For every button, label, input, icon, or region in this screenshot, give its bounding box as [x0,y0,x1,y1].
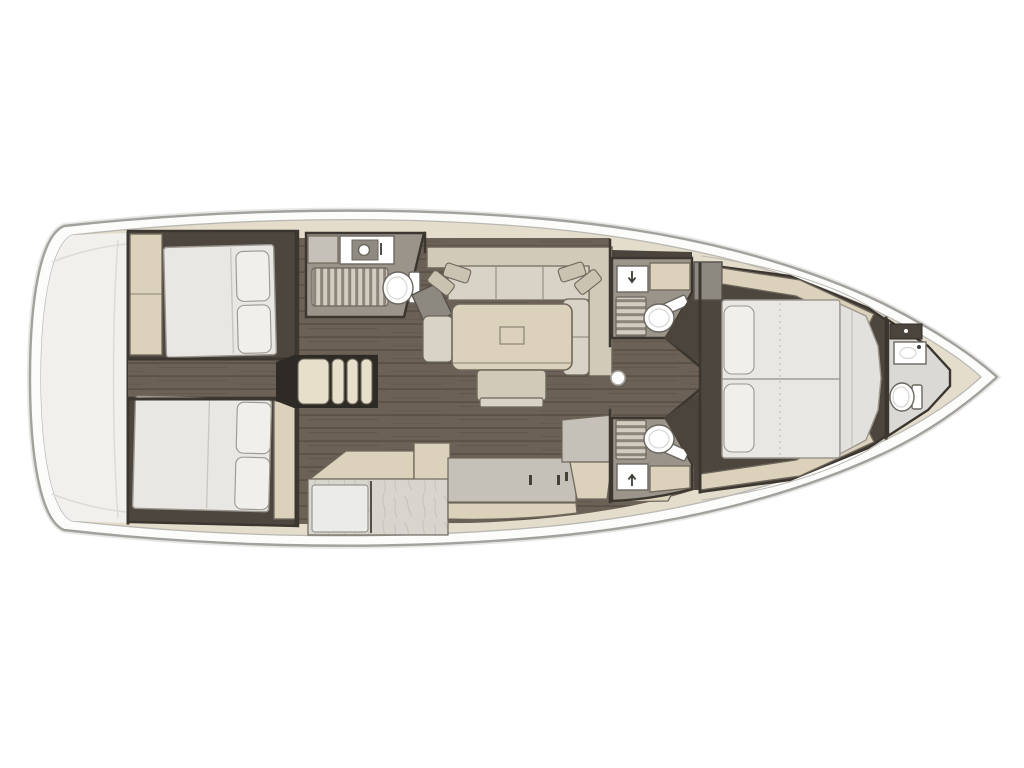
bench-seat [477,370,546,401]
aft-cabin-starboard [128,396,298,526]
double-berth [164,245,277,358]
mast [611,371,625,385]
galley-cabinet [414,443,450,482]
swim-platform [41,233,128,523]
pillow [724,306,754,374]
side-locker [274,401,296,519]
sofa-chaise-left [423,316,453,362]
yacht-floorplan [0,0,1024,768]
vanity-cabinet [650,263,690,290]
sink [894,342,926,364]
aft-corridor-floor [128,360,296,398]
cabinet-end [570,462,612,499]
island-double-berth [722,300,881,458]
sink-basin [359,245,370,256]
vanity-cabinet [650,466,690,492]
drawer-handle [529,475,532,485]
pillow [724,384,754,452]
page [0,0,1024,768]
worktop-end [562,415,612,462]
faucet-icon [917,345,921,349]
step-tread [347,359,358,404]
pillow [236,402,271,454]
shower-grate [312,268,388,306]
refrigerator [312,485,368,532]
shower-grate [616,297,646,336]
companionway-steps [276,355,378,408]
shelf-knob [904,329,908,333]
step-tread [332,359,344,404]
vanity-counter [308,236,338,263]
shower-grate [616,420,646,459]
double-berth [133,396,272,512]
bench-front [480,398,543,407]
step-tread [361,359,372,404]
drawer-handle [557,475,560,485]
pillow [237,305,271,354]
step-tread [298,359,329,404]
dining-table [452,304,572,370]
drawer-handle [565,472,568,481]
pillow [235,457,270,510]
pillow [236,251,270,302]
hanging-locker [694,262,722,300]
worktop-long [448,458,576,502]
aft-cabin-port [128,231,298,359]
